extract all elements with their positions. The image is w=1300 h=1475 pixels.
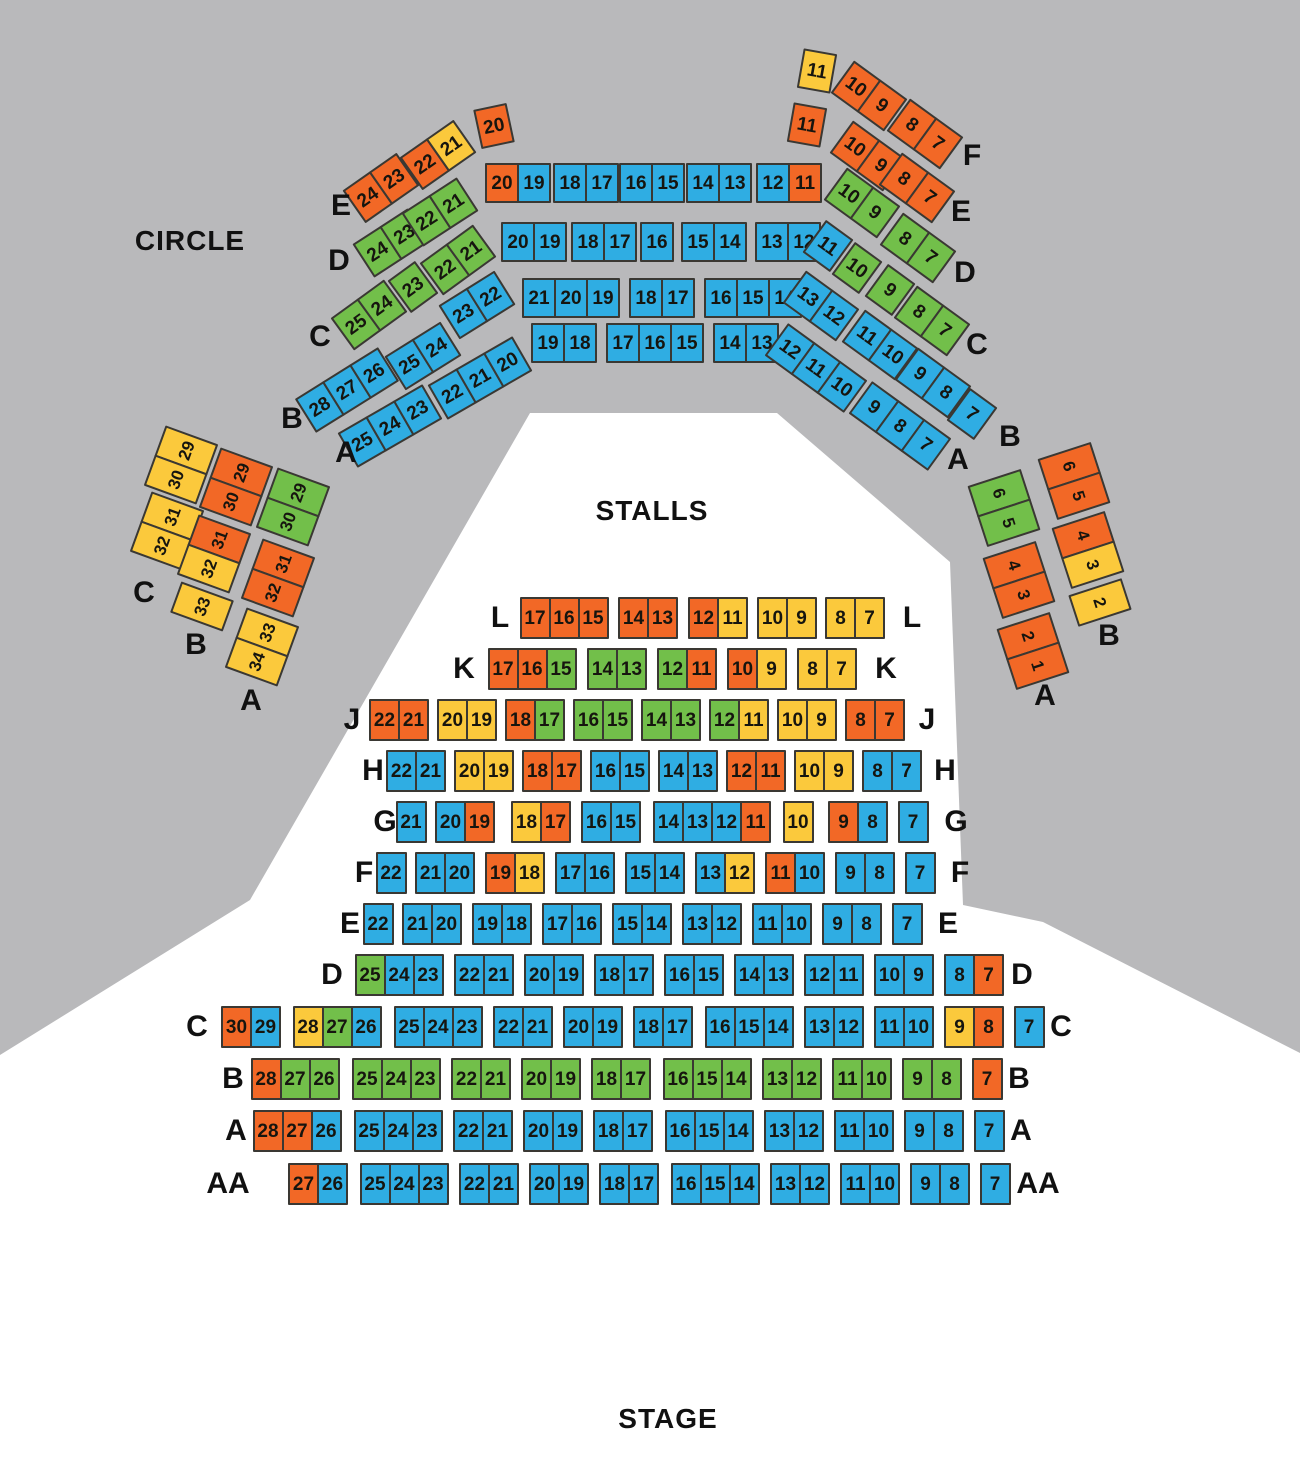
seat-stalls-J-7-9[interactable]: 9 <box>806 699 837 741</box>
seat-stalls-D-4-17[interactable]: 17 <box>623 954 654 996</box>
seat-stalls-A-4-20[interactable]: 20 <box>523 1110 554 1152</box>
seat-stalls-K-3-11[interactable]: 11 <box>686 648 717 690</box>
seat-group-stalls-C-2: 282726 <box>293 1006 382 1048</box>
seat-group-stalls-B-1: 282726 <box>251 1058 340 1100</box>
seat-group-stalls-L-4: 109 <box>757 597 817 639</box>
seat-stalls-F-4-17[interactable]: 17 <box>555 852 586 894</box>
seat-stalls-C-8-13[interactable]: 13 <box>804 1006 835 1048</box>
seat-stalls-D-6-14[interactable]: 14 <box>734 954 765 996</box>
seat-stalls-B-7-12[interactable]: 12 <box>791 1058 822 1100</box>
seat-stalls-G-3-18[interactable]: 18 <box>511 801 542 843</box>
seat-stalls-A-6-15[interactable]: 15 <box>694 1110 725 1152</box>
seat-stalls-K-1-16[interactable]: 16 <box>517 648 548 690</box>
seat-stalls-K-5-7[interactable]: 7 <box>826 648 857 690</box>
seat-stalls-AA-5-17[interactable]: 17 <box>628 1163 659 1205</box>
seat-circle-D-c4-13[interactable]: 13 <box>718 163 752 203</box>
seat-stalls-H-1-22[interactable]: 22 <box>386 750 417 792</box>
seat-stalls-C-10-8[interactable]: 8 <box>973 1006 1004 1048</box>
seat-group-stalls-AA-5: 1817 <box>599 1163 659 1205</box>
seat-group-stalls-H-7: 109 <box>794 750 854 792</box>
seat-stalls-B-8-11[interactable]: 11 <box>832 1058 863 1100</box>
seat-stalls-G-5-14[interactable]: 14 <box>653 801 684 843</box>
seat-group-circle-D-c1: 2019 <box>485 163 551 203</box>
row-label-stalls-right-A: A <box>1010 1114 1032 1148</box>
seat-stalls-D-3-19[interactable]: 19 <box>553 954 584 996</box>
seat-group-stalls-AA-8: 1110 <box>840 1163 900 1205</box>
seat-stalls-J-3-18[interactable]: 18 <box>505 699 536 741</box>
seat-stalls-A-9-9[interactable]: 9 <box>904 1110 935 1152</box>
seat-group-stalls-AA-3: 2221 <box>459 1163 519 1205</box>
seat-stalls-A-5-18[interactable]: 18 <box>593 1110 624 1152</box>
seat-circle-B-c2-17[interactable]: 17 <box>661 278 695 318</box>
seat-stalls-G-4-16[interactable]: 16 <box>581 801 612 843</box>
seat-stalls-G-2-20[interactable]: 20 <box>435 801 466 843</box>
seat-stalls-H-8-8[interactable]: 8 <box>862 750 893 792</box>
seat-stalls-G-2-19[interactable]: 19 <box>464 801 495 843</box>
seat-circle-C-c4-14[interactable]: 14 <box>713 222 747 262</box>
seat-stalls-K-4-9[interactable]: 9 <box>756 648 787 690</box>
seat-stalls-J-6-11[interactable]: 11 <box>738 699 769 741</box>
seat-stalls-L-1-15[interactable]: 15 <box>578 597 609 639</box>
seat-stalls-H-4-16[interactable]: 16 <box>590 750 621 792</box>
seat-stalls-C-1-30[interactable]: 30 <box>221 1006 252 1048</box>
seat-group-stalls-AA-7: 1312 <box>770 1163 830 1205</box>
seat-stalls-F-3-19[interactable]: 19 <box>485 852 516 894</box>
seat-stalls-AA-8-10[interactable]: 10 <box>869 1163 900 1205</box>
seat-stalls-F-2-21[interactable]: 21 <box>415 852 446 894</box>
seat-stalls-H-2-19[interactable]: 19 <box>483 750 514 792</box>
seat-stalls-L-4-10[interactable]: 10 <box>757 597 788 639</box>
seat-stalls-B-3-21[interactable]: 21 <box>480 1058 511 1100</box>
seat-circle-D-c4-14[interactable]: 14 <box>686 163 720 203</box>
seat-stalls-A-9-8[interactable]: 8 <box>933 1110 964 1152</box>
seat-stalls-B-9-9[interactable]: 9 <box>902 1058 933 1100</box>
seat-group-stalls-D-7: 1211 <box>804 954 864 996</box>
seat-stalls-D-5-15[interactable]: 15 <box>693 954 724 996</box>
seat-group-circle-D-c5: 1211 <box>756 163 822 203</box>
seat-circle-D-c3-15[interactable]: 15 <box>651 163 685 203</box>
seat-stalls-J-6-12[interactable]: 12 <box>709 699 740 741</box>
seat-stalls-C-7-14[interactable]: 14 <box>763 1006 794 1048</box>
row-label-stalls-left-B: B <box>222 1062 244 1096</box>
seat-group-stalls-AA-4: 2019 <box>529 1163 589 1205</box>
seat-stalls-C-2-28[interactable]: 28 <box>293 1006 324 1048</box>
seat-group-circle-C-c2: 1817 <box>571 222 637 262</box>
seat-stalls-F-6-13[interactable]: 13 <box>695 852 726 894</box>
seat-stalls-J-8-7[interactable]: 7 <box>874 699 905 741</box>
seat-stalls-A-7-12[interactable]: 12 <box>793 1110 824 1152</box>
seat-stalls-B-2-23[interactable]: 23 <box>410 1058 441 1100</box>
seat-stalls-D-8-9[interactable]: 9 <box>903 954 934 996</box>
seat-group-stalls-H-8: 87 <box>862 750 922 792</box>
seat-stalls-C-2-26[interactable]: 26 <box>351 1006 382 1048</box>
seat-stalls-AA-3-22[interactable]: 22 <box>459 1163 490 1205</box>
seat-stalls-B-4-19[interactable]: 19 <box>550 1058 581 1100</box>
seat-stalls-D-9-7[interactable]: 7 <box>973 954 1004 996</box>
row-label-stalls-left-E: E <box>340 907 360 941</box>
seat-stalls-H-6-11[interactable]: 11 <box>755 750 786 792</box>
seat-stalls-B-9-8[interactable]: 8 <box>931 1058 962 1100</box>
seat-stalls-C-9-11[interactable]: 11 <box>874 1006 905 1048</box>
seat-stalls-B-2-25[interactable]: 25 <box>352 1058 383 1100</box>
seat-stalls-K-1-17[interactable]: 17 <box>488 648 519 690</box>
seat-stalls-A-3-22[interactable]: 22 <box>453 1110 484 1152</box>
seat-stalls-D-8-10[interactable]: 10 <box>874 954 905 996</box>
seat-group-stalls-AA-9: 98 <box>910 1163 970 1205</box>
seat-circle-C-c3-16[interactable]: 16 <box>640 222 674 262</box>
seat-stalls-AA-8-11[interactable]: 11 <box>840 1163 871 1205</box>
seat-stalls-F-8-9[interactable]: 9 <box>835 852 866 894</box>
seat-stalls-E-2-20[interactable]: 20 <box>431 903 462 945</box>
seat-stalls-AA-5-18[interactable]: 18 <box>599 1163 630 1205</box>
seat-stalls-G-3-17[interactable]: 17 <box>540 801 571 843</box>
seat-circle-A-c2-15[interactable]: 15 <box>670 323 704 363</box>
seat-stalls-L-5-7[interactable]: 7 <box>854 597 885 639</box>
seat-stalls-L-5-8[interactable]: 8 <box>825 597 856 639</box>
seat-stalls-C-11-7[interactable]: 7 <box>1014 1006 1045 1048</box>
seat-group-stalls-D-6: 1413 <box>734 954 794 996</box>
seat-stalls-D-5-16[interactable]: 16 <box>664 954 695 996</box>
seat-stalls-E-3-19[interactable]: 19 <box>472 903 503 945</box>
seat-group-circle-D-c4: 1413 <box>686 163 752 203</box>
seat-stalls-B-1-27[interactable]: 27 <box>280 1058 311 1100</box>
seat-stalls-J-3-17[interactable]: 17 <box>534 699 565 741</box>
seat-stalls-AA-6-14[interactable]: 14 <box>729 1163 760 1205</box>
seat-stalls-H-5-13[interactable]: 13 <box>687 750 718 792</box>
seat-stalls-A-1-28[interactable]: 28 <box>253 1110 284 1152</box>
row-label-circle-left-A: A <box>335 436 357 470</box>
seat-stalls-F-2-20[interactable]: 20 <box>444 852 475 894</box>
seat-stalls-D-1-23[interactable]: 23 <box>413 954 444 996</box>
seat-stalls-G-5-12[interactable]: 12 <box>711 801 742 843</box>
seat-group-stalls-F-9: 7 <box>905 852 936 894</box>
seat-stalls-AA-4-20[interactable]: 20 <box>529 1163 560 1205</box>
seat-circle-E-right-1-11[interactable]: 11 <box>787 102 827 147</box>
seat-stalls-G-7-9[interactable]: 9 <box>828 801 859 843</box>
seat-group-stalls-E-9: 7 <box>892 903 923 945</box>
seat-stalls-E-2-21[interactable]: 21 <box>402 903 433 945</box>
seat-stalls-AA-4-19[interactable]: 19 <box>558 1163 589 1205</box>
seat-stalls-G-5-11[interactable]: 11 <box>740 801 771 843</box>
seat-stalls-AA-1-27[interactable]: 27 <box>288 1163 319 1205</box>
seat-circle-D-c1-19[interactable]: 19 <box>517 163 551 203</box>
seat-stalls-A-10-7[interactable]: 7 <box>974 1110 1005 1152</box>
seat-stalls-L-2-13[interactable]: 13 <box>647 597 678 639</box>
seat-circle-C-c4-15[interactable]: 15 <box>681 222 715 262</box>
row-label-stalls-left-K: K <box>453 652 475 686</box>
seat-stalls-D-1-25[interactable]: 25 <box>355 954 386 996</box>
seat-stalls-C-6-17[interactable]: 17 <box>662 1006 693 1048</box>
seat-stalls-F-6-12[interactable]: 12 <box>724 852 755 894</box>
seat-stalls-G-8-7[interactable]: 7 <box>898 801 929 843</box>
seat-stalls-AA-3-21[interactable]: 21 <box>488 1163 519 1205</box>
seat-circle-F-right-1-11[interactable]: 11 <box>797 48 837 93</box>
seat-stalls-B-10-7[interactable]: 7 <box>972 1058 1003 1100</box>
seat-stalls-F-7-10[interactable]: 10 <box>794 852 825 894</box>
seat-circle-B-c2-18[interactable]: 18 <box>629 278 663 318</box>
seat-stalls-H-3-17[interactable]: 17 <box>551 750 582 792</box>
seat-stalls-C-8-12[interactable]: 12 <box>833 1006 864 1048</box>
seat-stalls-C-3-24[interactable]: 24 <box>423 1006 454 1048</box>
seat-circle-B-c1-19[interactable]: 19 <box>586 278 620 318</box>
row-label-stalls-left-AA: AA <box>206 1167 249 1201</box>
seat-stalls-H-5-14[interactable]: 14 <box>658 750 689 792</box>
row-label-stalls-left-F: F <box>355 856 373 890</box>
seat-stalls-B-4-20[interactable]: 20 <box>521 1058 552 1100</box>
seat-stalls-AA-10-7[interactable]: 7 <box>980 1163 1011 1205</box>
seat-stalls-B-5-17[interactable]: 17 <box>620 1058 651 1100</box>
seat-stalls-C-7-15[interactable]: 15 <box>734 1006 765 1048</box>
seat-stalls-K-5-8[interactable]: 8 <box>797 648 828 690</box>
seat-stalls-G-1-21[interactable]: 21 <box>396 801 427 843</box>
seat-stalls-B-7-13[interactable]: 13 <box>762 1058 793 1100</box>
seat-stalls-K-1-15[interactable]: 15 <box>546 648 577 690</box>
seat-circle-B-c1-21[interactable]: 21 <box>522 278 556 318</box>
seat-circle-A-c3-14[interactable]: 14 <box>713 323 747 363</box>
seat-stalls-B-1-26[interactable]: 26 <box>309 1058 340 1100</box>
seat-group-stalls-J-1: 2221 <box>369 699 429 741</box>
seat-stalls-H-4-15[interactable]: 15 <box>619 750 650 792</box>
seat-stalls-A-8-10[interactable]: 10 <box>863 1110 894 1152</box>
seat-group-stalls-F-5: 1514 <box>625 852 685 894</box>
seat-stalls-C-1-29[interactable]: 29 <box>250 1006 281 1048</box>
seat-group-stalls-J-2: 2019 <box>437 699 497 741</box>
seat-stalls-A-4-19[interactable]: 19 <box>552 1110 583 1152</box>
seat-stalls-AA-7-13[interactable]: 13 <box>770 1163 801 1205</box>
seat-stalls-D-7-11[interactable]: 11 <box>833 954 864 996</box>
seat-circle-C-c1-19[interactable]: 19 <box>533 222 567 262</box>
seat-stalls-C-3-23[interactable]: 23 <box>452 1006 483 1048</box>
seat-stalls-C-5-19[interactable]: 19 <box>592 1006 623 1048</box>
seat-stalls-A-6-14[interactable]: 14 <box>723 1110 754 1152</box>
seat-stalls-D-9-8[interactable]: 8 <box>944 954 975 996</box>
row-label-slip-right-A: A <box>1034 679 1056 713</box>
seat-stalls-AA-1-26[interactable]: 26 <box>317 1163 348 1205</box>
seat-group-stalls-F-3: 1918 <box>485 852 545 894</box>
seat-stalls-B-6-15[interactable]: 15 <box>692 1058 723 1100</box>
seat-stalls-L-1-17[interactable]: 17 <box>520 597 551 639</box>
seat-circle-D-c1-20[interactable]: 20 <box>485 163 519 203</box>
seat-stalls-B-2-24[interactable]: 24 <box>381 1058 412 1100</box>
seat-stalls-D-1-24[interactable]: 24 <box>384 954 415 996</box>
seat-stalls-H-7-10[interactable]: 10 <box>794 750 825 792</box>
seat-stalls-K-2-13[interactable]: 13 <box>616 648 647 690</box>
seat-group-stalls-AA-10: 7 <box>980 1163 1011 1205</box>
seat-stalls-B-5-18[interactable]: 18 <box>591 1058 622 1100</box>
circle-title: CIRCLE <box>135 225 245 257</box>
seat-group-stalls-K-4: 109 <box>727 648 787 690</box>
seat-stalls-D-6-13[interactable]: 13 <box>763 954 794 996</box>
seat-stalls-F-3-18[interactable]: 18 <box>514 852 545 894</box>
seat-stalls-C-3-25[interactable]: 25 <box>394 1006 425 1048</box>
seat-circle-D-c2-18[interactable]: 18 <box>553 163 587 203</box>
seat-stalls-G-4-15[interactable]: 15 <box>610 801 641 843</box>
seat-circle-B-c3-15[interactable]: 15 <box>736 278 770 318</box>
seat-group-stalls-C-10: 98 <box>944 1006 1004 1048</box>
seat-stalls-AA-2-23[interactable]: 23 <box>418 1163 449 1205</box>
seat-circle-B-c1-20[interactable]: 20 <box>554 278 588 318</box>
seat-stalls-L-3-12[interactable]: 12 <box>688 597 719 639</box>
seat-stalls-F-8-8[interactable]: 8 <box>864 852 895 894</box>
seat-stalls-F-7-11[interactable]: 11 <box>765 852 796 894</box>
seat-stalls-C-5-20[interactable]: 20 <box>563 1006 594 1048</box>
row-label-slip-left-C: C <box>133 576 155 610</box>
seat-stalls-AA-6-15[interactable]: 15 <box>700 1163 731 1205</box>
seat-stalls-J-8-8[interactable]: 8 <box>845 699 876 741</box>
seat-stalls-H-1-21[interactable]: 21 <box>415 750 446 792</box>
seat-stalls-B-6-14[interactable]: 14 <box>721 1058 752 1100</box>
seat-stalls-J-1-21[interactable]: 21 <box>398 699 429 741</box>
seat-stalls-AA-2-25[interactable]: 25 <box>360 1163 391 1205</box>
seat-stalls-E-8-9[interactable]: 9 <box>822 903 853 945</box>
seat-stalls-E-7-11[interactable]: 11 <box>752 903 783 945</box>
seat-stalls-E-5-15[interactable]: 15 <box>612 903 643 945</box>
seat-stalls-J-4-16[interactable]: 16 <box>573 699 604 741</box>
seat-stalls-AA-7-12[interactable]: 12 <box>799 1163 830 1205</box>
seat-stalls-E-8-8[interactable]: 8 <box>851 903 882 945</box>
seat-group-stalls-L-3: 1211 <box>688 597 748 639</box>
seat-stalls-F-9-7[interactable]: 7 <box>905 852 936 894</box>
row-label-circle-right-B: B <box>999 420 1021 454</box>
seat-circle-A-c1-19[interactable]: 19 <box>531 323 565 363</box>
seat-group-circle-C-c3: 16 <box>640 222 674 262</box>
seat-stalls-H-8-7[interactable]: 7 <box>891 750 922 792</box>
seat-stalls-J-5-13[interactable]: 13 <box>670 699 701 741</box>
seat-group-stalls-A-1: 282726 <box>253 1110 342 1152</box>
seat-stalls-A-6-16[interactable]: 16 <box>665 1110 696 1152</box>
seat-stalls-J-2-20[interactable]: 20 <box>437 699 468 741</box>
seat-stalls-AA-9-9[interactable]: 9 <box>910 1163 941 1205</box>
seat-stalls-C-7-16[interactable]: 16 <box>705 1006 736 1048</box>
seat-stalls-B-8-10[interactable]: 10 <box>861 1058 892 1100</box>
seat-stalls-E-4-17[interactable]: 17 <box>542 903 573 945</box>
seat-stalls-C-4-22[interactable]: 22 <box>493 1006 524 1048</box>
seat-stalls-L-2-14[interactable]: 14 <box>618 597 649 639</box>
seat-stalls-D-2-21[interactable]: 21 <box>483 954 514 996</box>
seat-stalls-J-5-14[interactable]: 14 <box>641 699 672 741</box>
seat-group-circle-A-c1: 1918 <box>531 323 597 363</box>
row-label-circle-left-D: D <box>328 244 350 278</box>
seat-stalls-A-5-17[interactable]: 17 <box>622 1110 653 1152</box>
row-label-slip-left-B: B <box>185 628 207 662</box>
seat-stalls-F-5-15[interactable]: 15 <box>625 852 656 894</box>
seat-group-stalls-D-3: 2019 <box>524 954 584 996</box>
seat-circle-C-c1-20[interactable]: 20 <box>501 222 535 262</box>
seat-stalls-F-4-16[interactable]: 16 <box>584 852 615 894</box>
seat-group-stalls-C-4: 2221 <box>493 1006 553 1048</box>
seat-stalls-K-3-12[interactable]: 12 <box>657 648 688 690</box>
seat-group-stalls-G-8: 7 <box>898 801 929 843</box>
seat-group-stalls-G-3: 1817 <box>511 801 571 843</box>
seat-stalls-A-3-21[interactable]: 21 <box>482 1110 513 1152</box>
seat-stalls-C-9-10[interactable]: 10 <box>903 1006 934 1048</box>
seat-stalls-J-7-10[interactable]: 10 <box>777 699 808 741</box>
seat-circle-C-c5-13[interactable]: 13 <box>755 222 789 262</box>
seat-stalls-A-7-13[interactable]: 13 <box>764 1110 795 1152</box>
seat-stalls-G-6-10[interactable]: 10 <box>783 801 814 843</box>
seat-stalls-H-3-18[interactable]: 18 <box>522 750 553 792</box>
seat-circle-D-c5-11[interactable]: 11 <box>788 163 822 203</box>
seat-stalls-G-7-8[interactable]: 8 <box>857 801 888 843</box>
seat-stalls-H-6-12[interactable]: 12 <box>726 750 757 792</box>
seat-stalls-D-2-22[interactable]: 22 <box>454 954 485 996</box>
seat-stalls-A-2-24[interactable]: 24 <box>383 1110 414 1152</box>
seat-stalls-J-1-22[interactable]: 22 <box>369 699 400 741</box>
seat-stalls-C-6-18[interactable]: 18 <box>633 1006 664 1048</box>
seat-stalls-AA-9-8[interactable]: 8 <box>939 1163 970 1205</box>
seat-stalls-E-3-18[interactable]: 18 <box>501 903 532 945</box>
seat-stalls-H-7-9[interactable]: 9 <box>823 750 854 792</box>
seat-stalls-AA-6-16[interactable]: 16 <box>671 1163 702 1205</box>
seat-stalls-K-4-10[interactable]: 10 <box>727 648 758 690</box>
seat-stalls-J-4-15[interactable]: 15 <box>602 699 633 741</box>
seat-stalls-J-2-19[interactable]: 19 <box>466 699 497 741</box>
seat-stalls-D-3-20[interactable]: 20 <box>524 954 555 996</box>
seat-stalls-E-5-14[interactable]: 14 <box>641 903 672 945</box>
seat-stalls-E-1-22[interactable]: 22 <box>363 903 394 945</box>
seat-circle-D-c5-12[interactable]: 12 <box>756 163 790 203</box>
seat-stalls-E-7-10[interactable]: 10 <box>781 903 812 945</box>
seat-stalls-A-2-25[interactable]: 25 <box>354 1110 385 1152</box>
row-label-stalls-right-H: H <box>934 754 956 788</box>
seat-group-stalls-F-6: 1312 <box>695 852 755 894</box>
seat-stalls-D-7-12[interactable]: 12 <box>804 954 835 996</box>
seat-stalls-E-6-13[interactable]: 13 <box>682 903 713 945</box>
seat-group-stalls-C-7: 161514 <box>705 1006 794 1048</box>
row-label-circle-right-A: A <box>947 443 969 477</box>
seat-stalls-F-5-14[interactable]: 14 <box>654 852 685 894</box>
seat-group-stalls-B-3: 2221 <box>451 1058 511 1100</box>
seat-stalls-L-4-9[interactable]: 9 <box>786 597 817 639</box>
seat-circle-D-c2-17[interactable]: 17 <box>585 163 619 203</box>
seat-stalls-B-6-16[interactable]: 16 <box>663 1058 694 1100</box>
seat-stalls-H-2-20[interactable]: 20 <box>454 750 485 792</box>
seat-stalls-K-2-14[interactable]: 14 <box>587 648 618 690</box>
seat-stalls-E-6-12[interactable]: 12 <box>711 903 742 945</box>
seat-circle-C-c2-17[interactable]: 17 <box>603 222 637 262</box>
seat-stalls-L-3-11[interactable]: 11 <box>717 597 748 639</box>
seat-circle-D-c3-16[interactable]: 16 <box>619 163 653 203</box>
seat-circle-A-c1-18[interactable]: 18 <box>563 323 597 363</box>
seat-group-stalls-D-8: 109 <box>874 954 934 996</box>
seat-stalls-A-1-26[interactable]: 26 <box>311 1110 342 1152</box>
seat-circle-A-c2-17[interactable]: 17 <box>606 323 640 363</box>
seat-stalls-C-2-27[interactable]: 27 <box>322 1006 353 1048</box>
seat-stalls-A-2-23[interactable]: 23 <box>412 1110 443 1152</box>
seat-group-stalls-L-2: 1413 <box>618 597 678 639</box>
seat-stalls-E-9-7[interactable]: 7 <box>892 903 923 945</box>
seat-stalls-C-10-9[interactable]: 9 <box>944 1006 975 1048</box>
seat-stalls-A-8-11[interactable]: 11 <box>834 1110 865 1152</box>
seat-circle-C-c2-18[interactable]: 18 <box>571 222 605 262</box>
seat-stalls-B-1-28[interactable]: 28 <box>251 1058 282 1100</box>
seat-stalls-A-1-27[interactable]: 27 <box>282 1110 313 1152</box>
seat-circle-B-c3-16[interactable]: 16 <box>704 278 738 318</box>
seat-group-stalls-K-3: 1211 <box>657 648 717 690</box>
seat-circle-A-c2-16[interactable]: 16 <box>638 323 672 363</box>
seat-stalls-C-4-21[interactable]: 21 <box>522 1006 553 1048</box>
seat-group-stalls-A-8: 1110 <box>834 1110 894 1152</box>
seat-stalls-G-5-13[interactable]: 13 <box>682 801 713 843</box>
seat-stalls-AA-2-24[interactable]: 24 <box>389 1163 420 1205</box>
row-label-circle-right-F: F <box>963 139 981 173</box>
seat-stalls-F-1-22[interactable]: 22 <box>376 852 407 894</box>
seat-group-circle-F-right-1: 11 <box>797 48 837 93</box>
seat-stalls-D-4-18[interactable]: 18 <box>594 954 625 996</box>
seat-stalls-B-3-22[interactable]: 22 <box>451 1058 482 1100</box>
seat-stalls-L-1-16[interactable]: 16 <box>549 597 580 639</box>
seat-stalls-E-4-16[interactable]: 16 <box>571 903 602 945</box>
